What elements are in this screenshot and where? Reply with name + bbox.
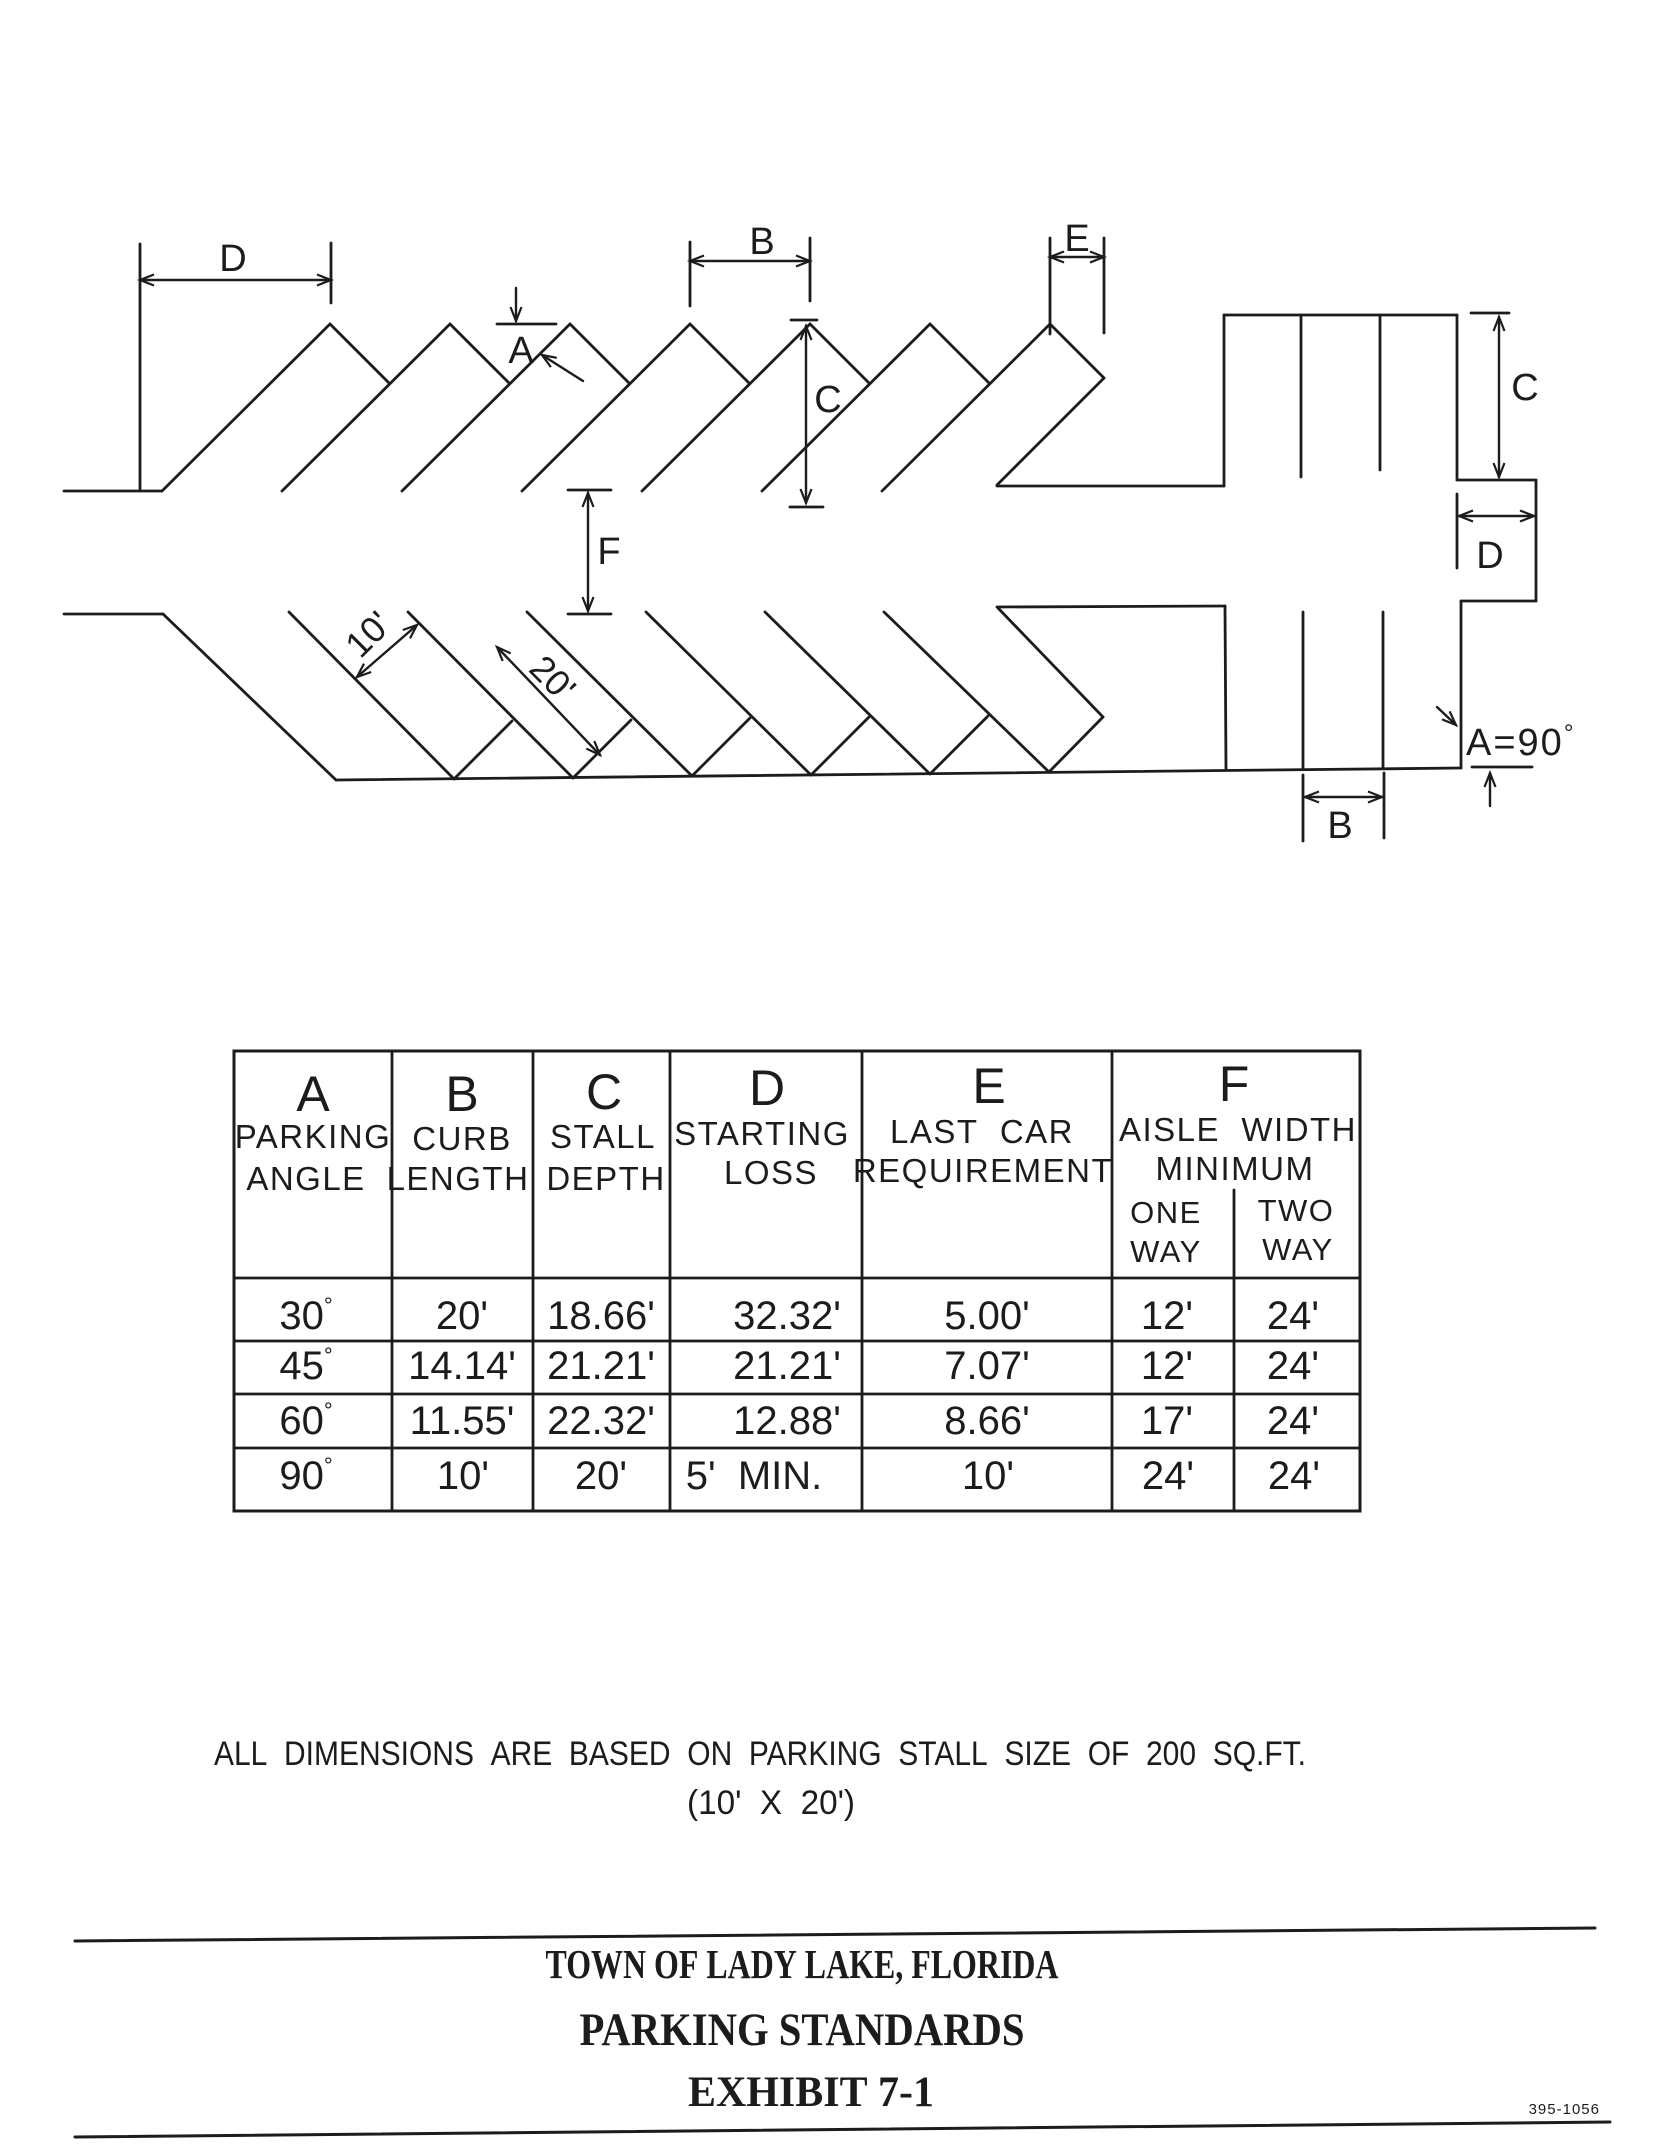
svg-text:20': 20' [575,1454,627,1498]
svg-text:17': 17' [1141,1399,1193,1443]
svg-text:D: D [749,1060,785,1116]
svg-text:B: B [1327,805,1352,847]
svg-text:10': 10' [437,1454,489,1498]
svg-text:20': 20' [522,647,584,709]
svg-text:5.00': 5.00' [944,1294,1030,1338]
svg-text:A: A [508,330,534,372]
svg-text:5' MIN.: 5' MIN. [686,1454,823,1498]
svg-text:21.21': 21.21' [733,1344,841,1388]
svg-text:12.88': 12.88' [733,1399,841,1443]
svg-text:90°: 90° [279,1453,332,1498]
svg-text:D: D [1476,535,1503,577]
svg-text:LENGTH: LENGTH [387,1160,530,1197]
svg-text:B: B [749,221,774,263]
svg-text:A: A [296,1066,330,1122]
svg-text:LOSS: LOSS [724,1154,818,1191]
svg-text:B: B [445,1066,478,1122]
svg-text:45°: 45° [279,1343,332,1388]
svg-text:22.32': 22.32' [547,1399,655,1443]
svg-text:24': 24' [1267,1344,1319,1388]
svg-text:11.55': 11.55' [410,1399,515,1443]
svg-text:10': 10' [962,1454,1014,1498]
svg-text:C: C [1511,367,1538,409]
svg-text:STARTING: STARTING [674,1115,850,1152]
svg-text:32.32': 32.32' [733,1294,841,1338]
svg-text:12': 12' [1141,1294,1193,1338]
svg-text:F: F [597,531,620,573]
svg-text:14.14': 14.14' [408,1344,516,1388]
svg-text:24': 24' [1267,1399,1319,1443]
svg-text:MINIMUM: MINIMUM [1156,1150,1315,1187]
svg-text:WAY: WAY [1262,1232,1334,1267]
svg-text:20': 20' [436,1294,488,1338]
svg-text:C: C [586,1064,622,1120]
svg-text:REQUIREMENT: REQUIREMENT [853,1152,1113,1189]
svg-text:PARKING: PARKING [235,1118,392,1155]
svg-text:F: F [1219,1056,1250,1112]
svg-text:A=90°: A=90° [1466,720,1575,764]
svg-text:DEPTH: DEPTH [546,1160,665,1197]
svg-text:10': 10' [337,603,399,665]
svg-text:ANGLE: ANGLE [246,1160,365,1197]
svg-text:D: D [219,238,246,280]
svg-text:60°: 60° [279,1398,332,1443]
svg-text:ALL DIMENSIONS ARE BASED O: ALL DIMENSIONS ARE BASED ON PARKING STAL… [214,1735,1306,1773]
svg-text:ONE: ONE [1130,1195,1202,1230]
svg-text:C: C [814,379,841,421]
svg-text:PARKING STANDARDS: PARKING STANDARDS [580,2004,1025,2056]
svg-text:21.21': 21.21' [547,1344,655,1388]
svg-text:E: E [1064,218,1089,260]
svg-text:395-1056: 395-1056 [1529,2101,1600,2118]
svg-text:8.66': 8.66' [944,1399,1030,1443]
svg-text:7.07': 7.07' [944,1344,1030,1388]
svg-text:18.66': 18.66' [547,1294,655,1338]
svg-text:AISLE WIDTH: AISLE WIDTH [1119,1111,1357,1148]
svg-text:EXHIBIT 7-1: EXHIBIT 7-1 [688,2069,934,2116]
svg-text:24': 24' [1268,1454,1320,1498]
svg-text:LAST CAR: LAST CAR [890,1113,1074,1150]
svg-text:24': 24' [1142,1454,1194,1498]
svg-text:TOWN OF LADY LAKE, FLORIDA: TOWN OF LADY LAKE, FLORIDA [546,1941,1059,1987]
svg-text:(10' X 20'): (10' X 20') [687,1784,855,1822]
svg-text:STALL: STALL [550,1118,656,1155]
svg-text:WAY: WAY [1130,1234,1202,1269]
svg-text:TWO: TWO [1258,1193,1335,1228]
svg-text:CURB: CURB [412,1120,512,1157]
svg-text:12': 12' [1141,1344,1193,1388]
svg-text:30°: 30° [279,1293,332,1338]
svg-text:E: E [972,1058,1005,1114]
svg-text:24': 24' [1267,1294,1319,1338]
